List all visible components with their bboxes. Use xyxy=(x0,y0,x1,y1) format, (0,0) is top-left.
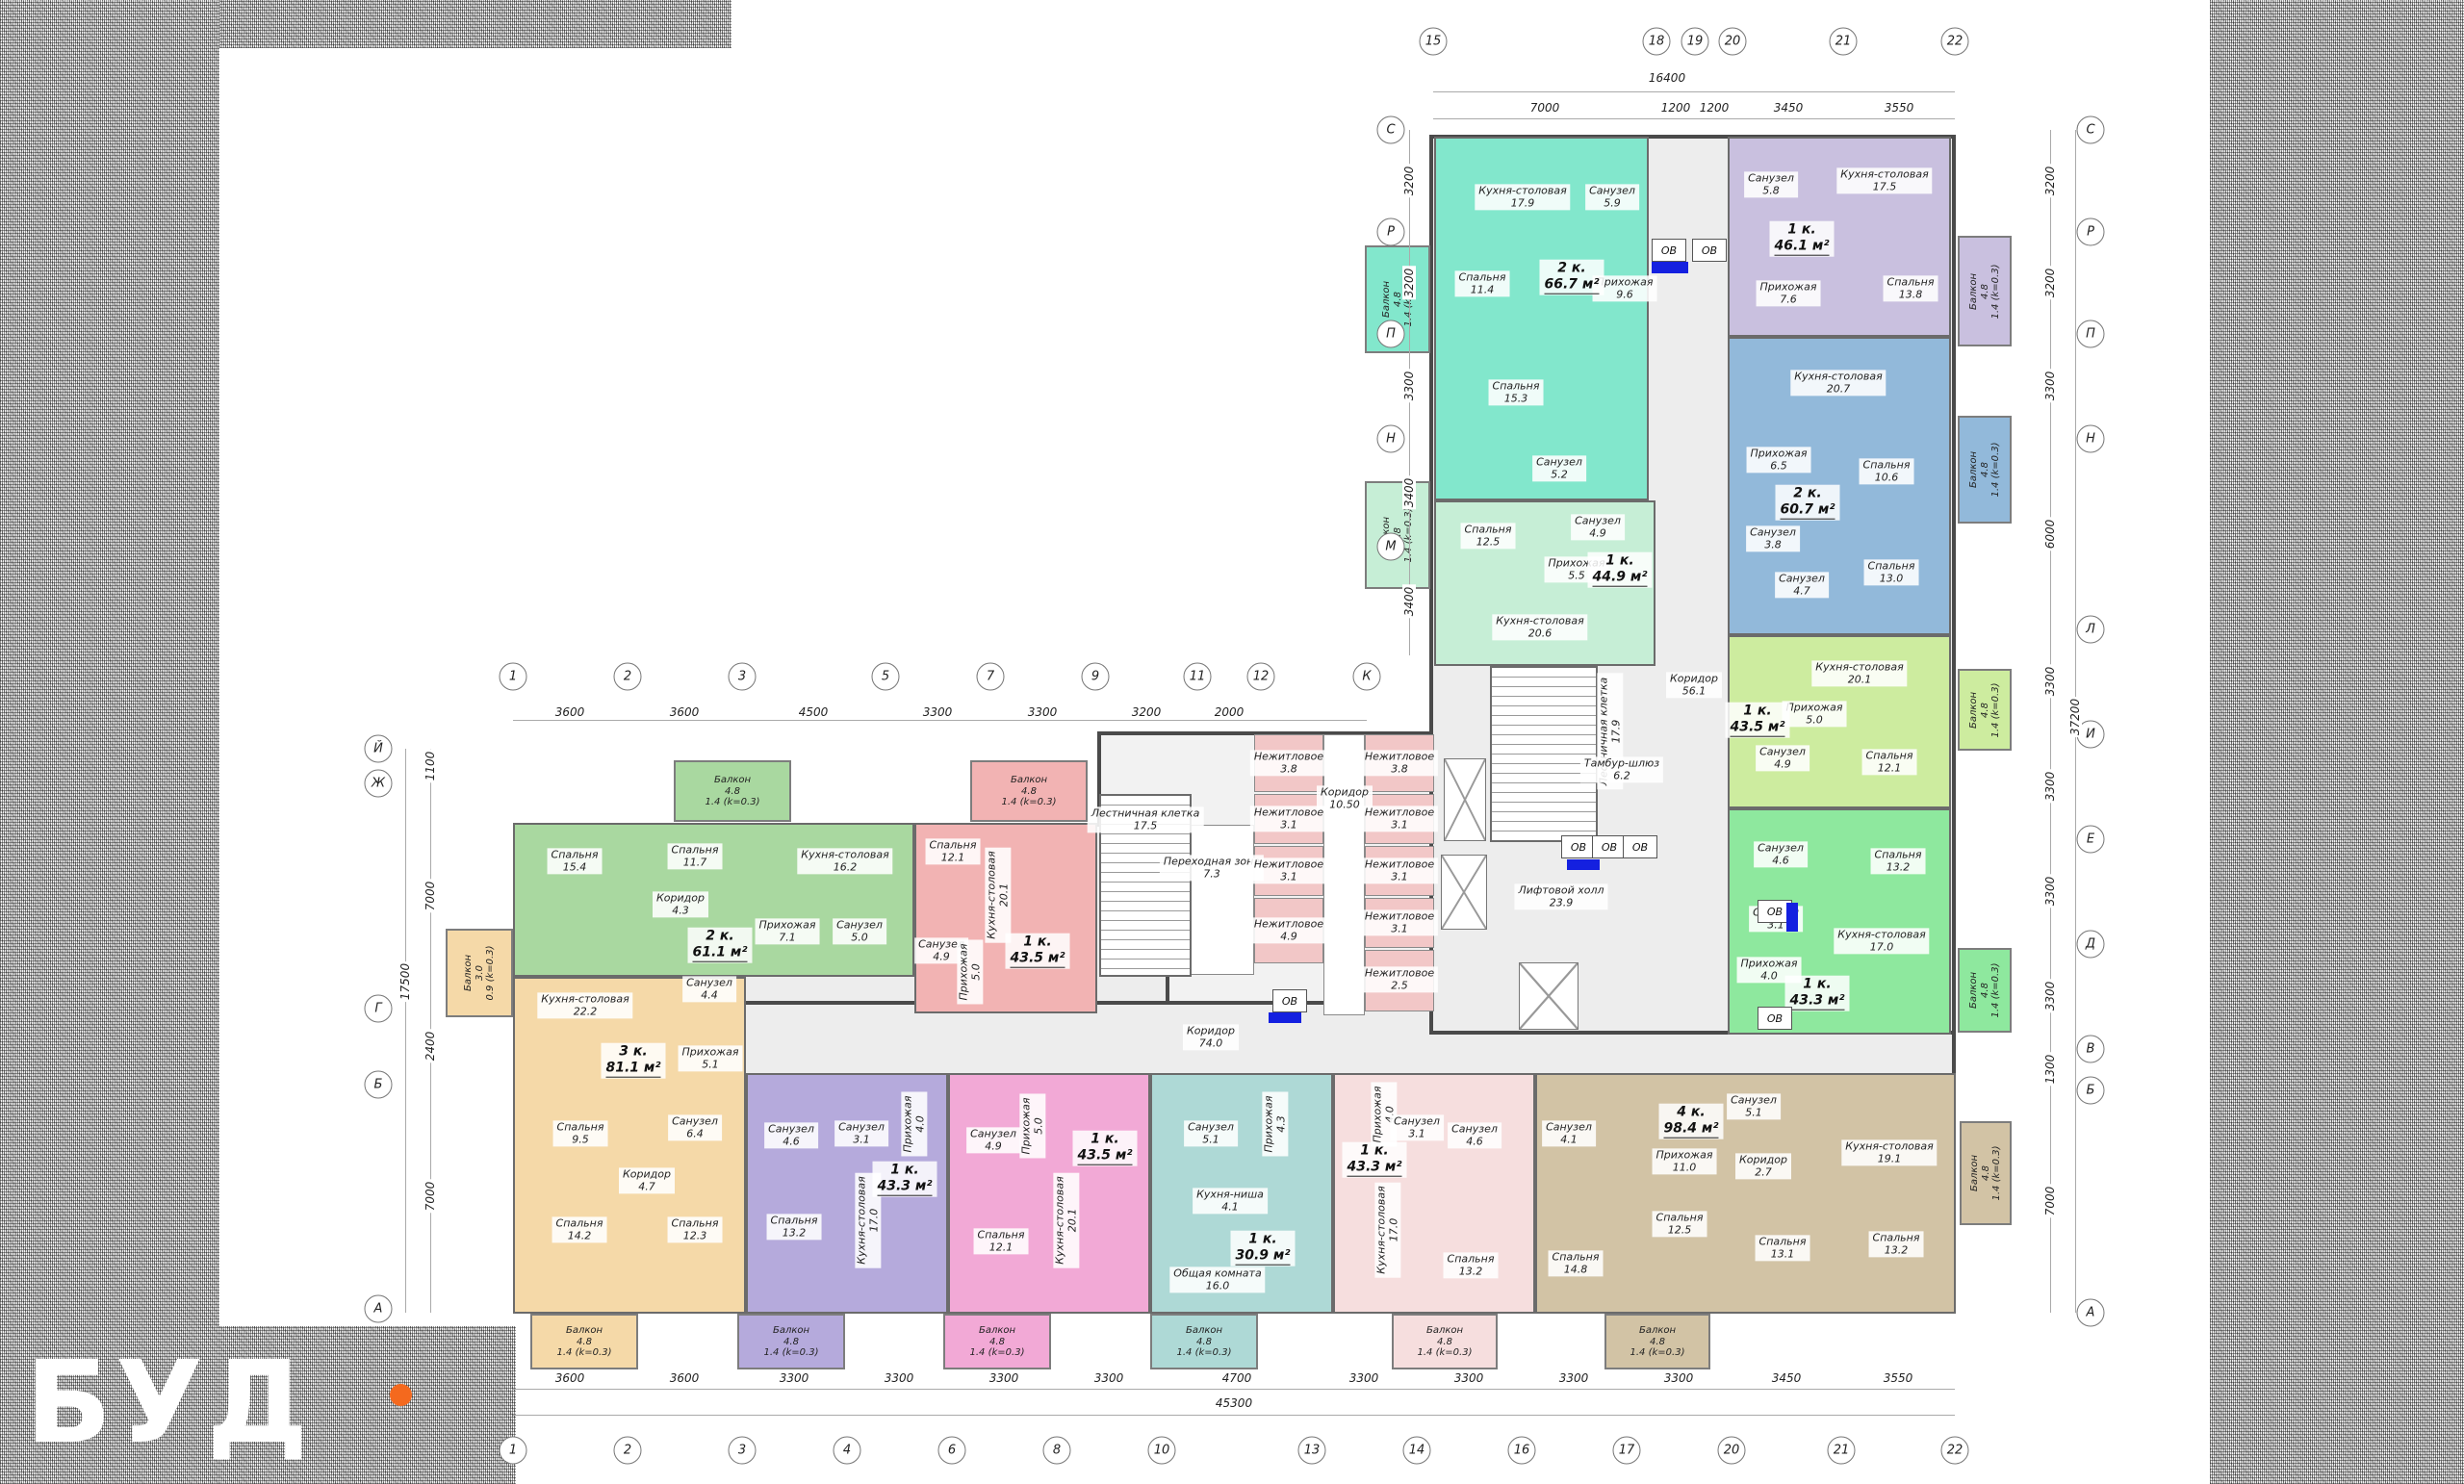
room-label: Кухня-столовая16.2 xyxy=(797,848,892,874)
axis-bubble-left: Б xyxy=(365,1071,393,1099)
dimension-line xyxy=(1433,91,1955,92)
apartment-area: 61.1 м² xyxy=(693,945,748,962)
dimension-label: 3300 xyxy=(988,1371,1021,1385)
axis-bubble-top: 20 xyxy=(1719,28,1747,56)
dimension-label: 3300 xyxy=(1026,705,1060,719)
balcony-text: 4.8 xyxy=(1002,785,1057,797)
axis-bubble-bottom: 4 xyxy=(834,1437,861,1465)
room-name: Кухня-столовая xyxy=(986,851,998,938)
room-label: Кухня-столовая22.2 xyxy=(537,992,632,1018)
dimension-label: 3200 xyxy=(1402,165,1416,198)
watermark: БУД xyxy=(25,1336,506,1469)
room-area: 11.0 xyxy=(1656,1162,1713,1174)
balcony-text: Балкон xyxy=(1968,963,1980,1018)
dimension-label: 3300 xyxy=(921,705,955,719)
room-label: Санузел3.1 xyxy=(834,1120,888,1146)
balcony-text: 4.8 xyxy=(1630,1336,1685,1347)
room-name: Спальня xyxy=(1863,459,1911,472)
axis-bubble-left: Й xyxy=(365,735,393,763)
room-area: 3.1 xyxy=(1254,819,1323,832)
room-name: Коридор xyxy=(1670,673,1718,685)
room-area: 3.1 xyxy=(1365,871,1434,883)
dimension-label: 3300 xyxy=(883,1371,916,1385)
common-room-label: Лестничная клетка17.5 xyxy=(1088,806,1204,832)
room-label: Кухня-столовая17.5 xyxy=(1836,167,1932,193)
room-name: Кухня-столовая xyxy=(1054,1176,1066,1264)
room-area: 7.6 xyxy=(1760,294,1817,306)
balcony-label: Балкон4.81.4 (k=0.3) xyxy=(706,775,760,808)
room-name: Спальня xyxy=(1868,560,1915,573)
room-label: Кухня-столовая17.9 xyxy=(1475,184,1570,210)
room-label: Прихожая4.3 xyxy=(1262,1092,1288,1157)
room-area: 3.8 xyxy=(1365,763,1434,776)
room-name: Прихожая xyxy=(1372,1087,1384,1143)
apartment-rooms-count: 1 к. xyxy=(1775,222,1830,239)
dimension-label: 3300 xyxy=(2043,770,2057,804)
room-name: Переходная зона xyxy=(1164,856,1260,868)
balcony-label: Балкон4.81.4 (k=0.3) xyxy=(1968,264,2002,319)
room-area: 4.3 xyxy=(1275,1096,1288,1153)
room-label: Санузел4.6 xyxy=(1754,841,1808,867)
apartment-type-label: 2 к.60.7 м² xyxy=(1776,485,1840,521)
dimension-line xyxy=(513,720,1367,721)
axis-bubble-bottom: 14 xyxy=(1403,1437,1431,1465)
dimension-label: 3200 xyxy=(2043,165,2057,198)
balcony-text: Балкон xyxy=(463,946,475,1001)
dimension-label: 3600 xyxy=(553,1371,587,1385)
axis-bubble-bottom: 6 xyxy=(938,1437,966,1465)
balcony-text: Балкон xyxy=(1418,1325,1473,1337)
balcony-text: Балкон xyxy=(1630,1325,1685,1337)
room-name: Кухня-ниша xyxy=(1196,1189,1264,1201)
room-name: Санузел xyxy=(1546,1121,1592,1134)
dimension-label: 1200 xyxy=(1659,101,1693,115)
hydrant-marker xyxy=(1567,859,1600,870)
room-area: 4.7 xyxy=(623,1181,671,1193)
common-room-label: Нежитловое3.8 xyxy=(1361,750,1438,776)
room-label: Коридор4.7 xyxy=(619,1167,675,1193)
dimension-label: 3600 xyxy=(553,705,587,719)
room-label: Спальня12.5 xyxy=(1653,1211,1707,1237)
room-label: Санузел6.4 xyxy=(668,1114,722,1140)
axis-bubble-mid: 2 xyxy=(614,663,642,691)
balcony-text: 1.4 (k=0.3) xyxy=(1418,1347,1473,1359)
dimension-label: 3300 xyxy=(1662,1371,1696,1385)
room-area: 20.7 xyxy=(1794,383,1882,396)
room-area: 4.4 xyxy=(686,989,732,1002)
room-area: 9.6 xyxy=(1597,289,1654,301)
room-name: Кухня-столовая xyxy=(541,993,629,1006)
apartment-rooms-count: 1 к. xyxy=(1347,1143,1402,1160)
room-name: Прихожая xyxy=(759,919,816,932)
axis-bubble-bottom: 10 xyxy=(1148,1437,1176,1465)
dimension-label: 3300 xyxy=(1557,1371,1591,1385)
room-label: Спальня13.0 xyxy=(1864,559,1919,585)
room-label: Спальня14.2 xyxy=(552,1216,607,1242)
balcony-text: 1.4 (k=0.3) xyxy=(1991,1146,2003,1201)
room-label: Санузел4.6 xyxy=(1448,1122,1501,1148)
room-name: Санузел xyxy=(1575,515,1621,527)
common-room-label: Нежитловое3.1 xyxy=(1250,857,1327,883)
room-area: 12.5 xyxy=(1465,536,1512,549)
room-name: Кухня-столовая xyxy=(856,1176,868,1264)
room-label: Спальня15.3 xyxy=(1489,379,1544,405)
room-area: 4.1 xyxy=(1546,1134,1592,1146)
noise-texture xyxy=(219,0,731,48)
room-area: 2.5 xyxy=(1365,980,1434,992)
room-area: 14.8 xyxy=(1553,1264,1600,1276)
balcony-text: 4.8 xyxy=(706,785,760,797)
room-area: 17.0 xyxy=(1837,941,1925,954)
room-area: 56.1 xyxy=(1670,685,1718,698)
room-label: Санузел4.4 xyxy=(682,976,736,1002)
axis-bubble-upper-left: Н xyxy=(1377,425,1405,453)
dimension-label: 3300 xyxy=(778,1371,811,1385)
room-label: Спальня10.6 xyxy=(1860,458,1914,484)
axis-bubble-bottom: 22 xyxy=(1941,1437,1969,1465)
apartment-area: 43.3 м² xyxy=(878,1179,933,1196)
room-label: Кухня-столовая20.6 xyxy=(1492,614,1587,640)
axis-bubble-bottom: 16 xyxy=(1508,1437,1536,1465)
heating-ov-box: ОВ xyxy=(1592,835,1627,858)
common-room-label: Нежитловое3.1 xyxy=(1361,857,1438,883)
room-area: 17.0 xyxy=(1388,1186,1400,1273)
room-label: Кухня-столовая20.1 xyxy=(1811,660,1907,686)
room-area: 14.2 xyxy=(556,1230,603,1242)
room-area: 17.9 xyxy=(1478,197,1566,210)
room-name: Коридор xyxy=(656,892,705,905)
room-name: Санузел xyxy=(1759,746,1806,758)
room-name: Нежитловое xyxy=(1254,858,1323,871)
apartment-region xyxy=(948,1073,1150,1314)
room-area: 5.8 xyxy=(1748,185,1794,197)
room-name: Кухня-столовая xyxy=(1840,168,1928,181)
dimension-label: 2400 xyxy=(423,1030,437,1063)
room-name: Спальня xyxy=(672,844,719,857)
dimension-label: 4500 xyxy=(797,705,831,719)
room-area: 12.3 xyxy=(672,1230,719,1242)
room-name: Санузел xyxy=(1779,573,1825,585)
room-name: Кухня-столовая xyxy=(1837,929,1925,941)
dimension-line xyxy=(1433,118,1955,119)
room-label: Санузел4.6 xyxy=(764,1122,818,1148)
apartment-rooms-count: 2 к. xyxy=(1781,486,1835,502)
hydrant-marker xyxy=(1786,903,1798,932)
balcony-text: Балкон xyxy=(1969,1146,1981,1201)
balcony-text: 4.8 xyxy=(1980,1146,1991,1201)
apartment-type-label: 1 к.43.3 м² xyxy=(873,1162,937,1197)
room-name: Санузел xyxy=(1394,1115,1440,1128)
room-area: 20.6 xyxy=(1496,627,1583,640)
room-area: 17.5 xyxy=(1840,181,1928,193)
room-label: Спальня13.2 xyxy=(1869,1231,1924,1257)
room-name: Санузел xyxy=(1589,185,1635,197)
apartment-region xyxy=(513,977,746,1314)
room-label: Прихожая5.0 xyxy=(1019,1094,1045,1159)
room-area: 11.4 xyxy=(1459,284,1506,296)
apartment-rooms-count: 3 к. xyxy=(606,1044,661,1061)
room-name: Санузел xyxy=(1758,842,1804,855)
heating-ov-box: ОВ xyxy=(1692,239,1727,262)
dimension-label: 7000 xyxy=(423,1180,437,1214)
room-area: 23.9 xyxy=(1518,897,1604,909)
room-area: 5.2 xyxy=(1536,469,1582,481)
room-area: 3.8 xyxy=(1254,763,1323,776)
dimension-label: 3200 xyxy=(2043,267,2057,300)
dimension-label: 3300 xyxy=(1452,1371,1486,1385)
room-area: 12.1 xyxy=(1866,762,1913,775)
room-label: Спальня15.4 xyxy=(548,848,603,874)
apartment-type-label: 1 к.30.9 м² xyxy=(1231,1231,1296,1267)
room-label: Спальня13.2 xyxy=(767,1214,822,1240)
dimension-label: 3300 xyxy=(1402,370,1416,403)
room-name: Нежитловое xyxy=(1365,967,1434,980)
dimension-line xyxy=(513,1415,1955,1416)
balcony-text: Балкон xyxy=(1381,272,1393,327)
room-name: Спальня xyxy=(1493,380,1540,393)
common-room-label: Нежитловое2.5 xyxy=(1361,966,1438,992)
room-name: Нежитловое xyxy=(1365,910,1434,923)
room-area: 13.2 xyxy=(771,1227,818,1240)
apartment-area: 60.7 м² xyxy=(1781,502,1835,520)
room-area: 20.1 xyxy=(998,851,1011,938)
room-name: Тамбур-шлюз xyxy=(1584,757,1659,770)
axis-bubble-bottom: 20 xyxy=(1718,1437,1746,1465)
dimension-label: 45300 xyxy=(1214,1396,1254,1410)
dimension-label: 3300 xyxy=(2043,665,2057,699)
room-name: Прихожая xyxy=(682,1046,739,1059)
balcony-label: Балкон4.81.4 (k=0.3) xyxy=(1968,963,2002,1018)
room-area: 4.1 xyxy=(1196,1201,1264,1214)
apartment-rooms-count: 1 к. xyxy=(1593,553,1648,570)
room-label: Санузел4.9 xyxy=(1756,745,1809,771)
room-name: Санузел xyxy=(1750,526,1796,539)
axis-bubble-bottom: 13 xyxy=(1298,1437,1326,1465)
balcony-text: 1.4 (k=0.3) xyxy=(706,797,760,808)
room-label: Санузел5.8 xyxy=(1744,171,1798,197)
common-room-label: Нежитловое3.1 xyxy=(1250,806,1327,832)
room-name: Санузел xyxy=(838,1121,885,1134)
balcony-label: Балкон4.81.4 (k=0.3) xyxy=(1969,1146,2003,1201)
dimension-label: 3600 xyxy=(668,1371,702,1385)
balcony-text: 4.8 xyxy=(1979,682,1990,737)
balcony-text: 3.0 xyxy=(474,946,485,1001)
dimension-label: 3550 xyxy=(1883,101,1916,115)
room-area: 5.0 xyxy=(836,932,883,944)
room-name: Прихожая xyxy=(1760,281,1817,294)
room-name: Спальня xyxy=(1656,1212,1704,1224)
axis-bubble-right: В xyxy=(2077,1036,2105,1063)
dimension-line xyxy=(513,1389,1955,1390)
room-label: Прихожая11.0 xyxy=(1653,1148,1717,1174)
balcony-text: 1.4 (k=0.3) xyxy=(1630,1347,1685,1359)
room-label: Спальня9.5 xyxy=(553,1120,608,1146)
balcony-text: 1.4 (k=0.3) xyxy=(1990,264,2002,319)
room-area: 16.0 xyxy=(1173,1280,1261,1292)
dimension-label: 3300 xyxy=(1347,1371,1381,1385)
room-label: Спальня11.7 xyxy=(668,843,723,869)
room-label: Спальня14.8 xyxy=(1549,1250,1604,1276)
room-area: 7.1 xyxy=(759,932,816,944)
apartment-area: 43.3 м² xyxy=(1347,1160,1402,1177)
balcony-label: Балкон4.81.4 (k=0.3) xyxy=(1177,1325,1232,1359)
room-label: Спальня13.2 xyxy=(1444,1252,1499,1278)
dimension-label: 3450 xyxy=(1770,1371,1804,1385)
stairs xyxy=(1490,666,1598,842)
dimension-label: 1100 xyxy=(423,750,437,783)
room-name: Спальня xyxy=(978,1229,1025,1241)
elevator-cross-icon xyxy=(1445,759,1485,840)
room-label: Санузел4.9 xyxy=(1571,514,1625,540)
balcony-text: Балкон xyxy=(1968,682,1980,737)
axis-bubble-bottom: 17 xyxy=(1613,1437,1641,1465)
room-area: 4.7 xyxy=(1779,585,1825,598)
room-area: 12.1 xyxy=(978,1241,1025,1254)
dimension-label: 3200 xyxy=(1130,705,1164,719)
apartment-type-label: 1 к.43.5 м² xyxy=(1006,934,1070,969)
room-label: Спальня13.8 xyxy=(1884,275,1938,301)
dimension-label: 3450 xyxy=(1772,101,1806,115)
axis-bubble-mid: 11 xyxy=(1184,663,1212,691)
balcony-text: Балкон xyxy=(1968,264,1980,319)
axis-bubble-top: 18 xyxy=(1643,28,1671,56)
apartment-area: 43.5 м² xyxy=(1011,951,1065,968)
dimension-label: 3400 xyxy=(1402,476,1416,510)
room-name: Кухня-столовая xyxy=(1794,371,1882,383)
hydrant-marker xyxy=(1652,262,1688,273)
common-room-label: Коридор74.0 xyxy=(1183,1024,1239,1050)
room-area: 3.1 xyxy=(838,1134,885,1146)
room-area: 5.1 xyxy=(682,1059,739,1071)
room-name: Спальня xyxy=(1866,750,1913,762)
room-area: 5.0 xyxy=(970,944,983,1001)
room-name: Прихожая xyxy=(902,1096,914,1153)
room-area: 5.1 xyxy=(1731,1107,1777,1119)
room-area: 13.2 xyxy=(1875,861,1922,874)
balcony-text: Балкон xyxy=(764,1325,819,1337)
dimension-label: 3550 xyxy=(1882,1371,1915,1385)
axis-bubble-bottom: 3 xyxy=(729,1437,757,1465)
dimension-label: 7000 xyxy=(2043,1185,2057,1218)
room-area: 3.8 xyxy=(1750,539,1796,551)
apartment-type-label: 4 к.98.4 м² xyxy=(1659,1104,1724,1139)
room-label: Общая комната16.0 xyxy=(1169,1267,1265,1292)
axis-bubble-mid: 5 xyxy=(872,663,900,691)
room-label: Прихожая7.6 xyxy=(1757,280,1821,306)
room-label: Прихожая6.5 xyxy=(1747,447,1811,473)
room-area: 3.1 xyxy=(1254,871,1323,883)
noise-texture xyxy=(0,0,219,1484)
axis-bubble-top: 19 xyxy=(1681,28,1709,56)
room-area: 3.1 xyxy=(1365,923,1434,935)
apartment-type-label: 1 к.44.9 м² xyxy=(1588,552,1653,588)
room-label: Санузел5.0 xyxy=(833,918,886,944)
room-label: Прихожая4.0 xyxy=(901,1092,927,1157)
room-name: Прихожая xyxy=(1786,702,1843,714)
balcony-label: Балкон4.81.4 (k=0.3) xyxy=(1968,682,2002,737)
balcony-text: Балкон xyxy=(706,775,760,786)
axis-bubble-right: Л xyxy=(2077,616,2105,644)
axis-bubble-right: Е xyxy=(2077,826,2105,854)
room-area: 4.6 xyxy=(768,1136,814,1148)
room-label: Спальня12.3 xyxy=(668,1216,723,1242)
room-label: Прихожая5.0 xyxy=(957,940,983,1005)
dimension-label: 3300 xyxy=(2043,980,2057,1013)
apartment-rooms-count: 1 к. xyxy=(878,1163,933,1179)
axis-bubble-right: Н xyxy=(2077,425,2105,453)
room-area: 4.9 xyxy=(970,1140,1016,1153)
balcony-text: 1.4 (k=0.3) xyxy=(1990,682,2002,737)
room-name: Спальня xyxy=(1465,524,1512,536)
apartment-region xyxy=(1728,137,1951,337)
balcony-text: 1.4 (k=0.3) xyxy=(1002,797,1057,808)
heating-ov-box: ОВ xyxy=(1561,835,1596,858)
balcony-text: 0.9 (k=0.3) xyxy=(485,946,497,1001)
room-area: 13.0 xyxy=(1868,573,1915,585)
room-label: Кухня-ниша4.1 xyxy=(1193,1188,1268,1214)
balcony-text: Балкон xyxy=(1968,443,1980,498)
dimension-label: 3300 xyxy=(2043,370,2057,403)
room-area: 12.1 xyxy=(930,852,977,864)
room-area: 3.1 xyxy=(1394,1128,1440,1140)
room-label: Спальня12.5 xyxy=(1461,523,1516,549)
apartment-area: 43.3 м² xyxy=(1790,993,1845,1011)
room-label: Прихожая5.0 xyxy=(1783,701,1847,727)
common-room-label: Переходная зона7.3 xyxy=(1160,855,1264,881)
room-label: Прихожая7.1 xyxy=(756,918,820,944)
axis-bubble-right: С xyxy=(2077,116,2105,144)
room-label: Санузел3.8 xyxy=(1746,525,1800,551)
apartment-area: 46.1 м² xyxy=(1775,239,1830,256)
apartment-type-label: 1 к.43.5 м² xyxy=(1073,1131,1138,1166)
room-name: Санузел xyxy=(768,1123,814,1136)
apartment-rooms-count: 1 к. xyxy=(1731,704,1785,720)
room-name: Нежитловое xyxy=(1254,918,1323,931)
room-label: Санузел4.1 xyxy=(1542,1120,1596,1146)
room-name: Спальня xyxy=(552,849,599,861)
room-name: Коридор xyxy=(1187,1025,1235,1037)
dimension-label: 3600 xyxy=(668,705,702,719)
axis-bubble-upper-left: С xyxy=(1377,116,1405,144)
balcony-text: 4.8 xyxy=(1177,1336,1232,1347)
room-name: Санузел xyxy=(1731,1094,1777,1107)
balcony-text: 4.8 xyxy=(557,1336,612,1347)
common-room-label: Нежитловое4.9 xyxy=(1250,917,1327,943)
room-name: Спальня xyxy=(1875,849,1922,861)
room-area: 11.7 xyxy=(672,857,719,869)
room-area: 13.2 xyxy=(1448,1266,1495,1278)
dimension-label: 7000 xyxy=(423,880,437,913)
axis-bubble-upper-left: М xyxy=(1377,533,1405,561)
hydrant-marker xyxy=(1269,1012,1301,1023)
room-area: 4.3 xyxy=(656,905,705,917)
room-area: 19.1 xyxy=(1845,1153,1933,1165)
room-area: 4.9 xyxy=(1759,758,1806,771)
room-label: Коридор4.3 xyxy=(653,891,708,917)
axis-bubble-right: П xyxy=(2077,320,2105,348)
dimension-label: 6000 xyxy=(2043,518,2057,551)
room-name: Спальня xyxy=(1759,1236,1807,1248)
apartment-area: 43.5 м² xyxy=(1078,1148,1133,1165)
axis-bubble-left: А xyxy=(365,1295,393,1323)
balcony-label: Балкон4.81.4 (k=0.3) xyxy=(764,1325,819,1359)
room-label: Кухня-столовая20.1 xyxy=(1053,1172,1079,1267)
balcony-label: Балкон4.81.4 (k=0.3) xyxy=(1418,1325,1473,1359)
room-name: Нежитловое xyxy=(1254,806,1323,819)
room-name: Санузел xyxy=(836,919,883,932)
room-name: Кухня-столовая xyxy=(1478,185,1566,197)
room-name: Спальня xyxy=(1887,276,1935,289)
